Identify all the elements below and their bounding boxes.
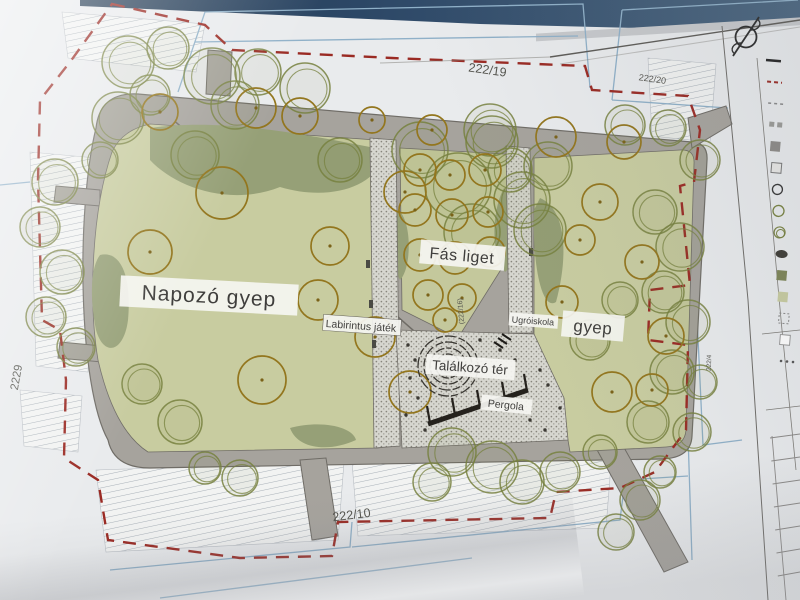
tree-proposed-dot xyxy=(413,208,416,211)
legend-symbol-square-green-light xyxy=(777,292,788,303)
parcel-2224: 222/4 xyxy=(706,354,714,371)
tree-proposed-dot xyxy=(158,110,161,113)
tree-proposed-dot xyxy=(598,200,601,203)
tree-proposed-dot xyxy=(328,244,331,247)
furniture-dot xyxy=(413,358,416,361)
tree-proposed-dot xyxy=(450,213,453,216)
gyep-text: gyep xyxy=(573,316,613,338)
legend-symbol-circle-dark xyxy=(772,184,783,195)
tree-proposed-dot xyxy=(373,335,376,338)
furniture-dot xyxy=(423,428,426,431)
parcel-2229: 2229 xyxy=(9,364,25,391)
furniture-dot xyxy=(498,348,501,351)
tree-proposed-dot xyxy=(298,114,301,117)
furniture-dot xyxy=(546,383,549,386)
legend-symbol-blob-dark xyxy=(775,250,788,259)
tree-proposed-dot xyxy=(316,298,319,301)
north-arrow-icon xyxy=(732,17,760,56)
tree-proposed-dot xyxy=(418,168,421,171)
site-plan: Napozó gyep Fás liget gyep Labirintus já… xyxy=(0,0,800,600)
label-gyep: gyep xyxy=(561,310,625,341)
legend-symbol-marks-dots xyxy=(780,360,795,364)
title-block-line xyxy=(777,549,800,553)
furniture-dot xyxy=(406,343,409,346)
furniture-dot xyxy=(543,428,546,431)
tree-proposed-dot xyxy=(486,210,489,213)
furniture-dot xyxy=(558,406,561,409)
title-block-line xyxy=(778,572,800,576)
tree-proposed-dot xyxy=(578,238,581,241)
tree-proposed-dot xyxy=(664,334,667,337)
tree-proposed-dot xyxy=(403,190,406,193)
tree-proposed-dot xyxy=(483,168,486,171)
tree-proposed-dot xyxy=(554,135,557,138)
furniture-dot xyxy=(404,413,407,416)
tree-proposed-dot xyxy=(650,388,653,391)
legend-symbol-square-gray-dash xyxy=(778,313,789,324)
furniture-dot xyxy=(408,376,411,379)
legend-symbol-square-white xyxy=(780,335,791,346)
tree-proposed-dot xyxy=(560,300,563,303)
tree-existing xyxy=(514,204,566,256)
title-block-line xyxy=(770,434,800,438)
tree-proposed-dot xyxy=(426,293,429,296)
legend-symbol-circle-olive-double xyxy=(774,226,786,238)
tree-proposed-dot xyxy=(260,378,263,381)
tree-proposed-dot xyxy=(640,260,643,263)
title-block xyxy=(770,434,800,600)
legend-symbol-line-red-dash xyxy=(767,82,782,83)
legend-symbol-line-black xyxy=(766,60,781,61)
legend-symbol-circle-olive xyxy=(773,205,785,217)
furniture-dot xyxy=(538,368,541,371)
legend-symbol-square-dark xyxy=(770,141,781,152)
title-block-line xyxy=(773,480,800,484)
tree-proposed-dot xyxy=(408,390,411,393)
tree-proposed-dot xyxy=(220,191,223,194)
tree-proposed-dot xyxy=(430,128,433,131)
legend-symbol-squares-pair xyxy=(769,122,782,128)
tree-proposed-dot xyxy=(254,106,257,109)
tree-proposed-dot xyxy=(370,118,373,121)
photo-of-plan: Napozó gyep Fás liget gyep Labirintus já… xyxy=(0,0,800,600)
tree-proposed-dot xyxy=(610,390,613,393)
legend xyxy=(766,60,794,363)
legend-symbol-square-outline xyxy=(771,163,782,174)
tree-proposed-dot xyxy=(622,140,625,143)
furniture-dot xyxy=(478,338,481,341)
legend-symbol-square-green-dark xyxy=(776,270,787,281)
tree-proposed-dot xyxy=(148,250,151,253)
title-block-line xyxy=(775,526,800,530)
tree-proposed-dot xyxy=(443,318,446,321)
legend-symbol-line-gray-dash xyxy=(768,103,783,104)
tree-proposed-dot xyxy=(448,173,451,176)
title-block-line xyxy=(771,457,800,461)
furniture-dot xyxy=(416,396,419,399)
furniture-dot xyxy=(528,418,531,421)
